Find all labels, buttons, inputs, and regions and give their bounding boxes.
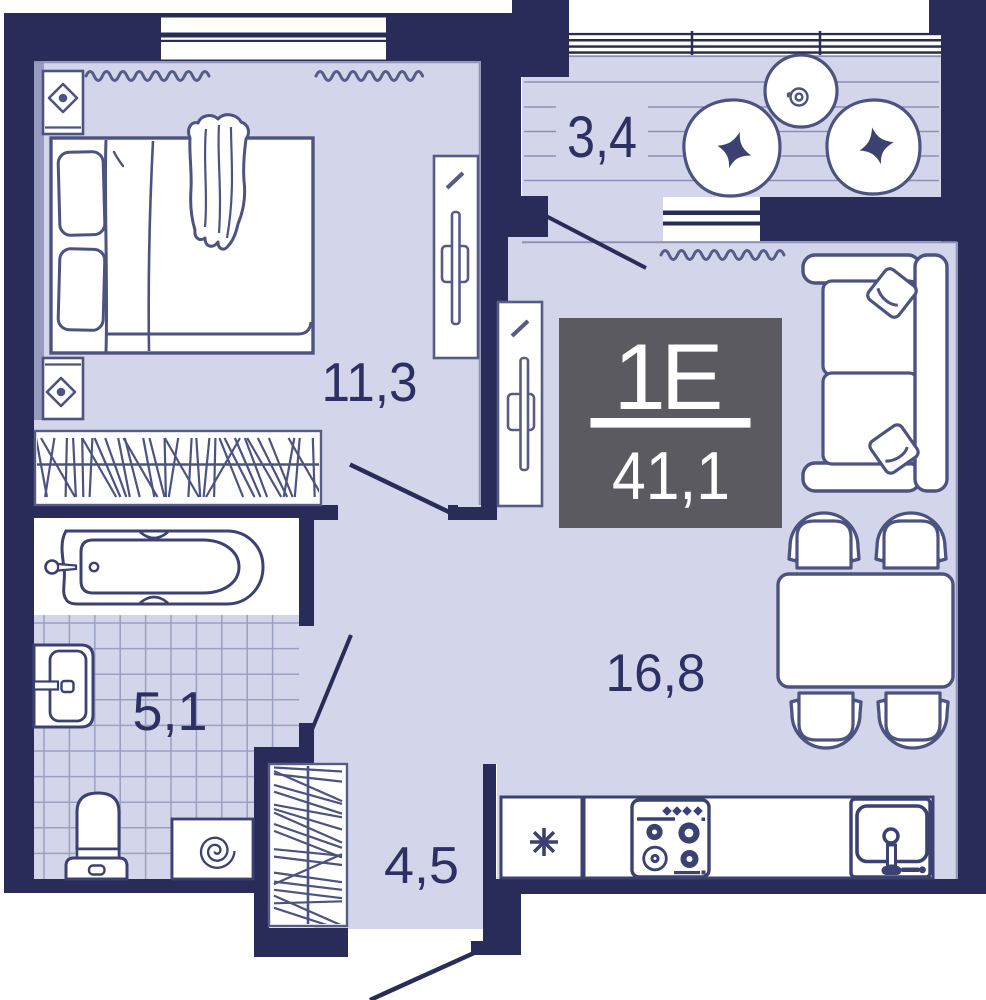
svg-text:1Е: 1Е [614, 324, 720, 429]
svg-text:11,3: 11,3 [322, 351, 418, 413]
svg-text:3,4: 3,4 [567, 105, 637, 170]
svg-text:4,5: 4,5 [384, 837, 459, 895]
svg-text:5,1: 5,1 [133, 680, 208, 742]
svg-text:41,1: 41,1 [612, 438, 730, 514]
svg-text:16,8: 16,8 [606, 644, 706, 703]
